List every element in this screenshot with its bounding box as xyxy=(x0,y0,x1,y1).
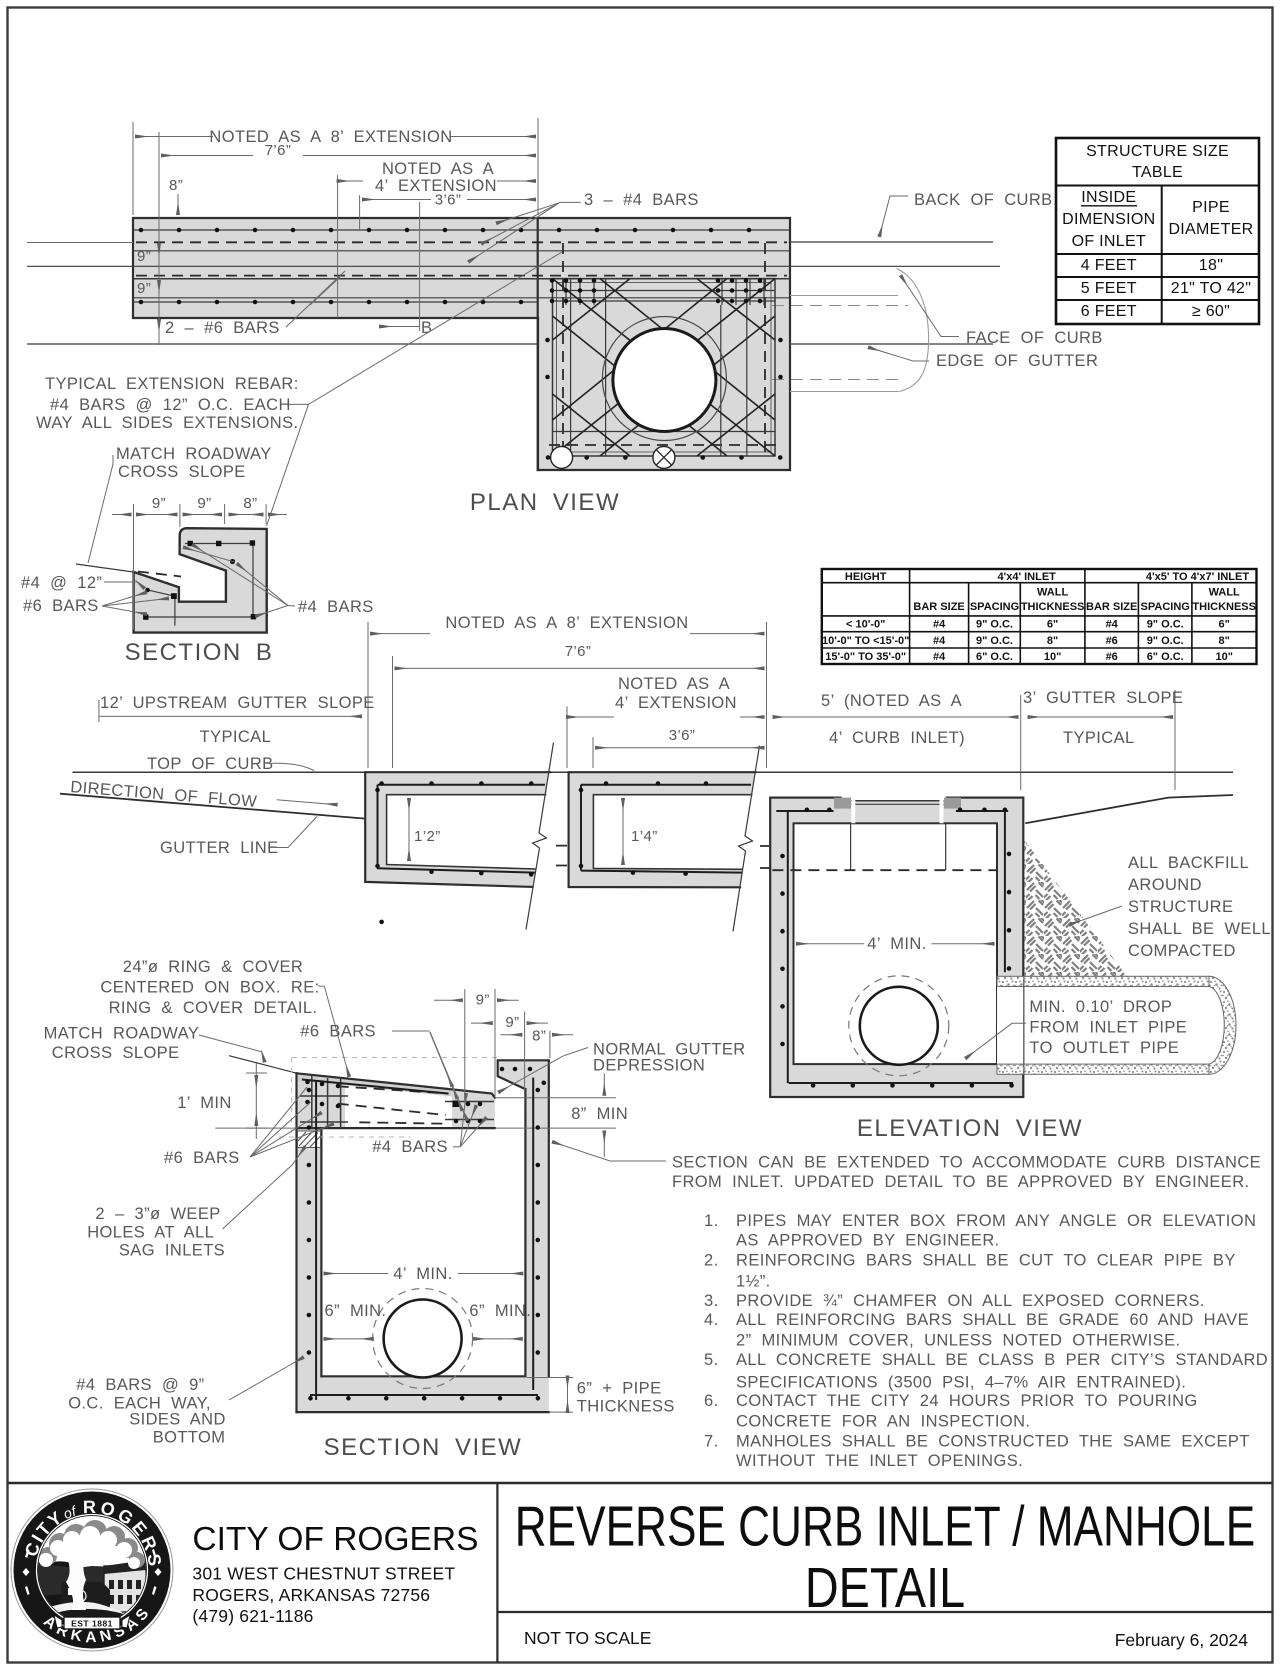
svg-text:#4 BARS: #4 BARS xyxy=(372,1138,448,1156)
svg-text:#4: #4 xyxy=(933,635,946,647)
svg-text:21" TO 42": 21" TO 42" xyxy=(1171,280,1251,297)
svg-text:SPACING: SPACING xyxy=(970,601,1019,613)
svg-text:6": 6" xyxy=(1047,619,1058,631)
svg-text:FACE OF CURB: FACE OF CURB xyxy=(966,329,1103,347)
svg-text:1.: 1. xyxy=(704,1212,719,1230)
svg-text:4’ CURB INLET): 4’ CURB INLET) xyxy=(829,729,965,747)
svg-text:CITY OF ROGERS: CITY OF ROGERS xyxy=(192,1521,478,1558)
svg-text:2 – #6 BARS: 2 – #6 BARS xyxy=(165,319,280,337)
svg-text:5’ (NOTED AS A: 5’ (NOTED AS A xyxy=(821,692,962,710)
svg-text:#6: #6 xyxy=(1106,635,1118,647)
svg-text:3’6”: 3’6” xyxy=(669,727,696,744)
svg-text:10": 10" xyxy=(1044,651,1061,663)
svg-text:ALL BACKFILL: ALL BACKFILL xyxy=(1128,854,1249,872)
svg-text:1’ MIN: 1’ MIN xyxy=(177,1094,231,1112)
svg-text:9”: 9” xyxy=(197,495,211,512)
svg-text:CONTACT THE CITY 24 HOURS PRIO: CONTACT THE CITY 24 HOURS PRIOR TO POURI… xyxy=(736,1392,1198,1410)
svg-text:6” MIN.: 6” MIN. xyxy=(469,1302,531,1320)
svg-text:CROSS SLOPE: CROSS SLOPE xyxy=(52,1044,180,1062)
svg-text:PIPE: PIPE xyxy=(1192,199,1230,216)
svg-text:THICKNESS: THICKNESS xyxy=(1192,601,1256,613)
svg-text:7.: 7. xyxy=(704,1433,719,1451)
svg-text:6": 6" xyxy=(1219,619,1230,631)
svg-text:EST 1881: EST 1881 xyxy=(71,1619,113,1629)
svg-text:THICKNESS: THICKNESS xyxy=(1021,601,1085,613)
svg-text:8”: 8” xyxy=(532,1028,546,1045)
svg-text:WALL: WALL xyxy=(1209,587,1240,599)
svg-text:WITHOUT THE INLET OPENINGS.: WITHOUT THE INLET OPENINGS. xyxy=(736,1452,1023,1470)
svg-text:TYPICAL EXTENSION REBAR:: TYPICAL EXTENSION REBAR: xyxy=(45,375,299,393)
svg-text:12’ UPSTREAM GUTTER SLOPE: 12’ UPSTREAM GUTTER SLOPE xyxy=(100,694,375,712)
svg-text:3’6”: 3’6” xyxy=(435,192,462,209)
svg-text:9”: 9” xyxy=(137,280,151,297)
svg-text:(479) 621-1186: (479) 621-1186 xyxy=(192,1606,313,1626)
svg-text:#4 BARS: #4 BARS xyxy=(298,598,374,616)
svg-text:1½”.: 1½”. xyxy=(736,1273,771,1291)
svg-text:#6: #6 xyxy=(1106,651,1118,663)
svg-text:REINFORCING BARS SHALL BE CUT: REINFORCING BARS SHALL BE CUT TO CLEAR P… xyxy=(736,1252,1236,1270)
svg-text:6” MIN.: 6” MIN. xyxy=(325,1302,387,1320)
svg-text:9" O.C.: 9" O.C. xyxy=(976,635,1013,647)
svg-text:5.: 5. xyxy=(704,1351,719,1369)
svg-text:9" O.C.: 9" O.C. xyxy=(976,619,1013,631)
svg-text:RING & COVER DETAIL.: RING & COVER DETAIL. xyxy=(109,999,318,1017)
svg-text:4’ MIN.: 4’ MIN. xyxy=(867,935,926,953)
svg-text:#6 BARS: #6 BARS xyxy=(23,597,99,615)
svg-text:2” MINIMUM COVER, UNLESS NOTED: 2” MINIMUM COVER, UNLESS NOTED OTHERWISE… xyxy=(736,1331,1180,1349)
svg-text:1’4”: 1’4” xyxy=(631,828,658,845)
svg-text:EDGE OF GUTTER: EDGE OF GUTTER xyxy=(936,352,1098,370)
svg-text:CONCRETE FOR AN INSPECTION.: CONCRETE FOR AN INSPECTION. xyxy=(736,1412,1030,1430)
svg-text:PROVIDE ¾” CHAMFER ON ALL EXPO: PROVIDE ¾” CHAMFER ON ALL EXPOSED CORNER… xyxy=(736,1292,1205,1310)
svg-text:24”ø RING & COVER: 24”ø RING & COVER xyxy=(123,958,303,976)
svg-text:SAG INLETS: SAG INLETS xyxy=(119,1242,225,1260)
svg-text:PIPES MAY ENTER BOX FROM ANY A: PIPES MAY ENTER BOX FROM ANY ANGLE OR EL… xyxy=(736,1212,1256,1230)
svg-text:#4: #4 xyxy=(933,651,946,663)
svg-text:ELEVATION VIEW: ELEVATION VIEW xyxy=(857,1115,1083,1142)
svg-text:ALL CONCRETE SHALL BE CLASS B: ALL CONCRETE SHALL BE CLASS B PER CITY’S… xyxy=(736,1351,1268,1369)
svg-text:#4 BARS @ 12” O.C. EACH: #4 BARS @ 12” O.C. EACH xyxy=(50,396,291,414)
svg-text:SHALL BE WELL: SHALL BE WELL xyxy=(1128,920,1271,938)
svg-text:#6 BARS: #6 BARS xyxy=(164,1149,240,1167)
svg-text:DEPRESSION: DEPRESSION xyxy=(593,1057,705,1075)
svg-text:MANHOLES SHALL BE CONSTRUCTED: MANHOLES SHALL BE CONSTRUCTED THE SAME E… xyxy=(736,1433,1250,1451)
svg-text:6” + PIPE: 6” + PIPE xyxy=(577,1380,662,1398)
svg-text:6" O.C.: 6" O.C. xyxy=(1147,651,1184,663)
svg-text:3.: 3. xyxy=(704,1292,719,1310)
svg-text:NOT TO SCALE: NOT TO SCALE xyxy=(524,1628,651,1648)
svg-text:5 FEET: 5 FEET xyxy=(1081,280,1137,297)
svg-text:COMPACTED: COMPACTED xyxy=(1128,942,1236,960)
svg-text:DIMENSION: DIMENSION xyxy=(1062,211,1155,228)
svg-text:February 6, 2024: February 6, 2024 xyxy=(1115,1630,1249,1650)
svg-text:OF INLET: OF INLET xyxy=(1072,233,1146,250)
svg-text:AS APPROVED BY ENGINEER.: AS APPROVED BY ENGINEER. xyxy=(736,1232,1000,1250)
svg-text:10": 10" xyxy=(1215,651,1232,663)
svg-text:8”: 8” xyxy=(169,177,183,194)
svg-text:4'x4' INLET: 4'x4' INLET xyxy=(997,571,1056,583)
svg-text:NOTED AS A 8’ EXTENSION: NOTED AS A 8’ EXTENSION xyxy=(445,614,688,632)
svg-text:BAR SIZE: BAR SIZE xyxy=(1086,601,1137,613)
svg-text:4 FEET: 4 FEET xyxy=(1081,257,1137,274)
svg-text:BOTTOM: BOTTOM xyxy=(153,1429,226,1447)
svg-text:18": 18" xyxy=(1199,257,1223,274)
svg-text:4’ MIN.: 4’ MIN. xyxy=(393,1265,452,1283)
svg-text:9" O.C.: 9" O.C. xyxy=(1147,619,1184,631)
svg-text:SECTION VIEW: SECTION VIEW xyxy=(324,1434,523,1461)
svg-text:4.: 4. xyxy=(704,1311,719,1329)
svg-text:HOLES AT ALL: HOLES AT ALL xyxy=(87,1224,214,1242)
svg-text:SPACING: SPACING xyxy=(1141,601,1190,613)
svg-text:SIDES AND: SIDES AND xyxy=(129,1411,226,1429)
svg-text:TABLE: TABLE xyxy=(1132,164,1183,181)
svg-text:2.: 2. xyxy=(704,1252,719,1270)
svg-text:SPECIFICATIONS (3500 PSI, 4–7%: SPECIFICATIONS (3500 PSI, 4–7% AIR ENTRA… xyxy=(736,1374,1186,1392)
svg-text:6" O.C.: 6" O.C. xyxy=(976,651,1013,663)
svg-text:PLAN VIEW: PLAN VIEW xyxy=(470,489,620,516)
svg-text:7’6”: 7’6” xyxy=(265,142,292,159)
svg-text:STRUCTURE SIZE: STRUCTURE SIZE xyxy=(1086,143,1229,160)
svg-text:DETAIL: DETAIL xyxy=(805,1557,965,1620)
svg-text:MIN. 0.10’ DROP: MIN. 0.10’ DROP xyxy=(1029,998,1172,1016)
svg-text:#4 BARS @ 9”: #4 BARS @ 9” xyxy=(76,1376,204,1394)
svg-text:8": 8" xyxy=(1047,635,1058,647)
svg-text:4'x5' TO 4'x7' INLET: 4'x5' TO 4'x7' INLET xyxy=(1146,571,1249,583)
svg-text:TOP OF CURB: TOP OF CURB xyxy=(147,755,274,773)
svg-text:DIAMETER: DIAMETER xyxy=(1168,221,1253,238)
svg-text:1’2”: 1’2” xyxy=(414,828,441,845)
svg-text:8”: 8” xyxy=(243,495,257,512)
svg-text:#4 @ 12”: #4 @ 12” xyxy=(21,574,102,592)
svg-text:WALL: WALL xyxy=(1037,587,1068,599)
svg-text:4’ EXTENSION: 4’ EXTENSION xyxy=(615,694,737,712)
svg-text:7’6”: 7’6” xyxy=(565,643,592,660)
svg-text:BAR SIZE: BAR SIZE xyxy=(913,601,964,613)
svg-text:SECTION CAN BE EXTENDED TO ACC: SECTION CAN BE EXTENDED TO ACCOMMODATE C… xyxy=(672,1154,1261,1172)
svg-text:FROM INLET. UPDATED DETAIL TO: FROM INLET. UPDATED DETAIL TO BE APPROVE… xyxy=(672,1173,1250,1191)
svg-text:INSIDE: INSIDE xyxy=(1081,189,1136,206)
svg-text:#4: #4 xyxy=(933,619,946,631)
svg-text:9”: 9” xyxy=(505,1014,519,1031)
svg-text:THICKNESS: THICKNESS xyxy=(577,1398,675,1416)
svg-text:SECTION B: SECTION B xyxy=(125,639,274,666)
svg-text:8” MIN: 8” MIN xyxy=(571,1105,628,1123)
svg-text:AROUND: AROUND xyxy=(1128,876,1202,894)
svg-text:6 FEET: 6 FEET xyxy=(1081,303,1137,320)
svg-text:ALL REINFORCING BARS SHALL BE: ALL REINFORCING BARS SHALL BE GRADE 60 A… xyxy=(736,1311,1249,1329)
svg-text:NOTED AS A 8’ EXTENSION: NOTED AS A 8’ EXTENSION xyxy=(209,128,452,146)
svg-text:≥ 60": ≥ 60" xyxy=(1192,303,1230,320)
svg-text:CENTERED ON BOX. RE:: CENTERED ON BOX. RE: xyxy=(100,979,319,997)
svg-text:2 – 3”ø WEEP: 2 – 3”ø WEEP xyxy=(95,1205,220,1223)
svg-text:TYPICAL: TYPICAL xyxy=(200,728,272,746)
svg-text:3’ GUTTER SLOPE: 3’ GUTTER SLOPE xyxy=(1023,689,1183,707)
svg-text:#6 BARS: #6 BARS xyxy=(300,1023,376,1041)
svg-text:TO OUTLET PIPE: TO OUTLET PIPE xyxy=(1029,1039,1179,1057)
svg-text:MATCH ROADWAY: MATCH ROADWAY xyxy=(44,1025,200,1043)
svg-text:REVERSE CURB INLET / MANHOLE: REVERSE CURB INLET / MANHOLE xyxy=(515,1494,1255,1558)
svg-text:ROGERS, ARKANSAS 72756: ROGERS, ARKANSAS 72756 xyxy=(192,1585,430,1605)
svg-text:B: B xyxy=(421,319,432,337)
svg-text:#4: #4 xyxy=(1106,619,1119,631)
svg-text:NOTED AS A: NOTED AS A xyxy=(618,675,730,693)
svg-text:TYPICAL: TYPICAL xyxy=(1063,729,1135,747)
svg-text:WAY ALL SIDES EXTENSIONS.: WAY ALL SIDES EXTENSIONS. xyxy=(36,414,299,432)
svg-text:MATCH ROADWAY: MATCH ROADWAY xyxy=(116,445,272,463)
svg-text:6.: 6. xyxy=(704,1392,719,1410)
svg-text:GUTTER LINE: GUTTER LINE xyxy=(160,839,279,857)
svg-text:9”: 9” xyxy=(476,992,490,1009)
svg-text:9”: 9” xyxy=(152,495,166,512)
svg-text:9”: 9” xyxy=(137,248,151,265)
svg-text:15'-0" TO 35'-0": 15'-0" TO 35'-0" xyxy=(825,651,906,663)
svg-text:FROM INLET PIPE: FROM INLET PIPE xyxy=(1029,1019,1187,1037)
svg-text:CROSS SLOPE: CROSS SLOPE xyxy=(118,463,246,481)
svg-text:9" O.C.: 9" O.C. xyxy=(1147,635,1184,647)
svg-text:3 – #4 BARS: 3 – #4 BARS xyxy=(584,191,699,209)
svg-text:8": 8" xyxy=(1219,635,1230,647)
svg-text:NOTED AS A: NOTED AS A xyxy=(382,160,494,178)
svg-text:10'-0" TO <15'-0": 10'-0" TO <15'-0" xyxy=(822,635,909,647)
svg-text:HEIGHT: HEIGHT xyxy=(845,571,887,583)
svg-text:STRUCTURE: STRUCTURE xyxy=(1128,898,1233,916)
svg-text:< 10'-0": < 10'-0" xyxy=(846,619,885,631)
svg-text:BACK OF CURB: BACK OF CURB xyxy=(914,191,1053,209)
svg-text:301 WEST CHESTNUT STREET: 301 WEST CHESTNUT STREET xyxy=(192,1564,455,1584)
